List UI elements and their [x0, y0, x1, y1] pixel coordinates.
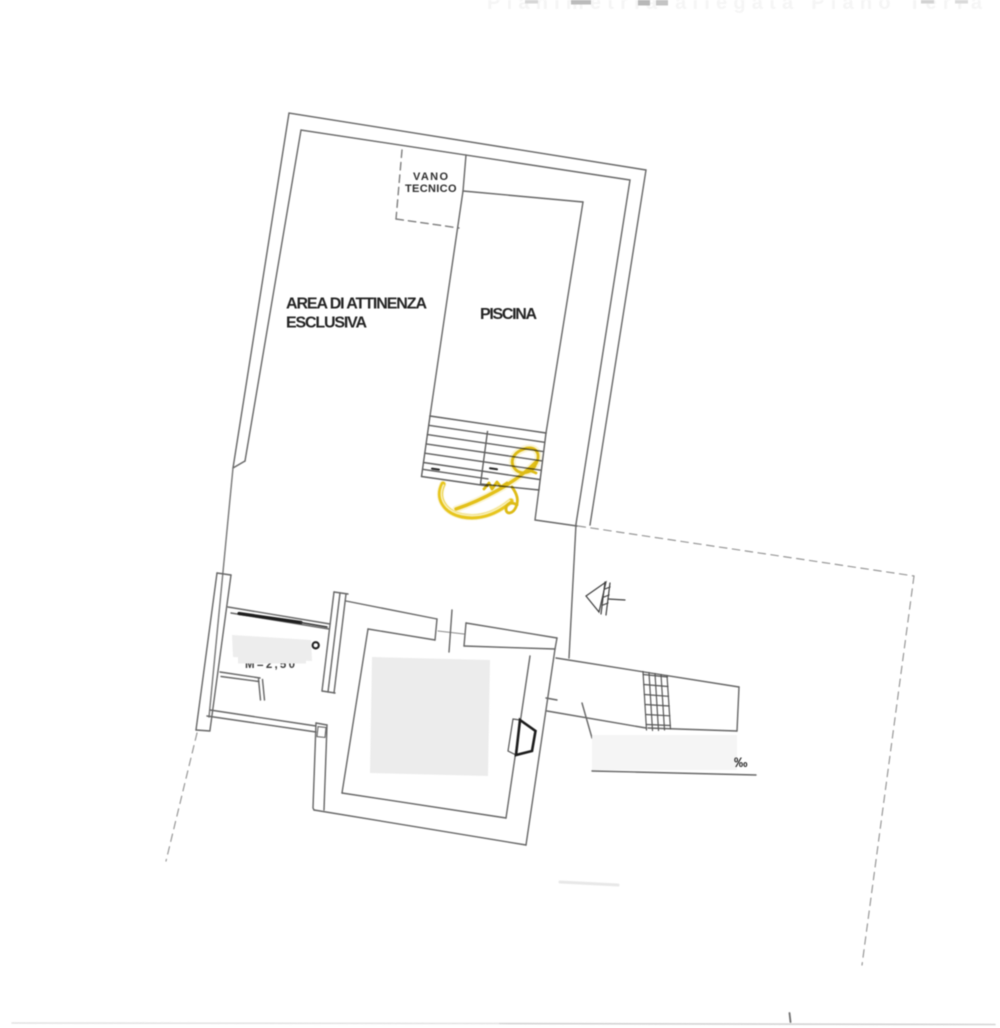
svg-text:Planimetria allegata Piano T: Planimetria allegata Piano Terra [487, 0, 983, 14]
svg-text:VANO: VANO [413, 171, 448, 183]
svg-text:‰: ‰ [734, 755, 748, 770]
svg-text:ESCLUSIVA: ESCLUSIVA [286, 315, 367, 332]
svg-text:AREA DI ATTINENZA: AREA DI ATTINENZA [286, 296, 427, 313]
svg-text:TECNICO: TECNICO [405, 183, 457, 195]
svg-text:PISCINA: PISCINA [480, 306, 537, 323]
